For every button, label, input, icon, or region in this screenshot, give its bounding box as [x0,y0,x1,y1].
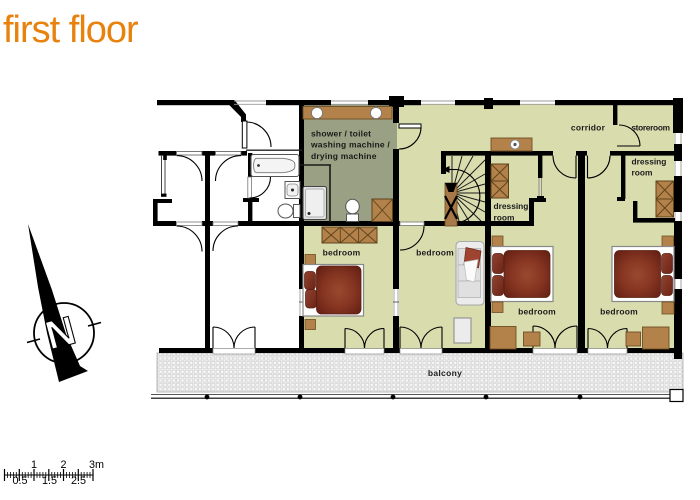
svg-text:bedroom: bedroom [518,307,556,317]
svg-text:1.5: 1.5 [42,475,57,487]
svg-text:bedroom: bedroom [600,307,638,317]
svg-text:bedroom: bedroom [416,248,454,258]
svg-text:shower / toilet: shower / toilet [311,129,371,139]
svg-text:1: 1 [31,459,37,471]
svg-text:dressing: dressing [494,201,529,211]
svg-text:corridor: corridor [571,123,606,133]
svg-text:3m: 3m [89,459,104,471]
svg-text:balcony: balcony [428,368,462,378]
svg-text:0.5: 0.5 [12,475,27,487]
svg-text:storeroom: storeroom [631,123,669,133]
svg-text:dressing: dressing [632,157,667,167]
svg-text:2: 2 [60,459,66,471]
svg-text:washing machine /: washing machine / [310,140,390,150]
svg-text:bedroom: bedroom [323,248,361,258]
svg-text:room: room [632,168,653,178]
svg-text:first floor: first floor [3,9,139,51]
svg-text:2.5: 2.5 [71,475,86,487]
svg-text:drying machine: drying machine [311,151,377,161]
svg-text:room: room [494,213,515,223]
